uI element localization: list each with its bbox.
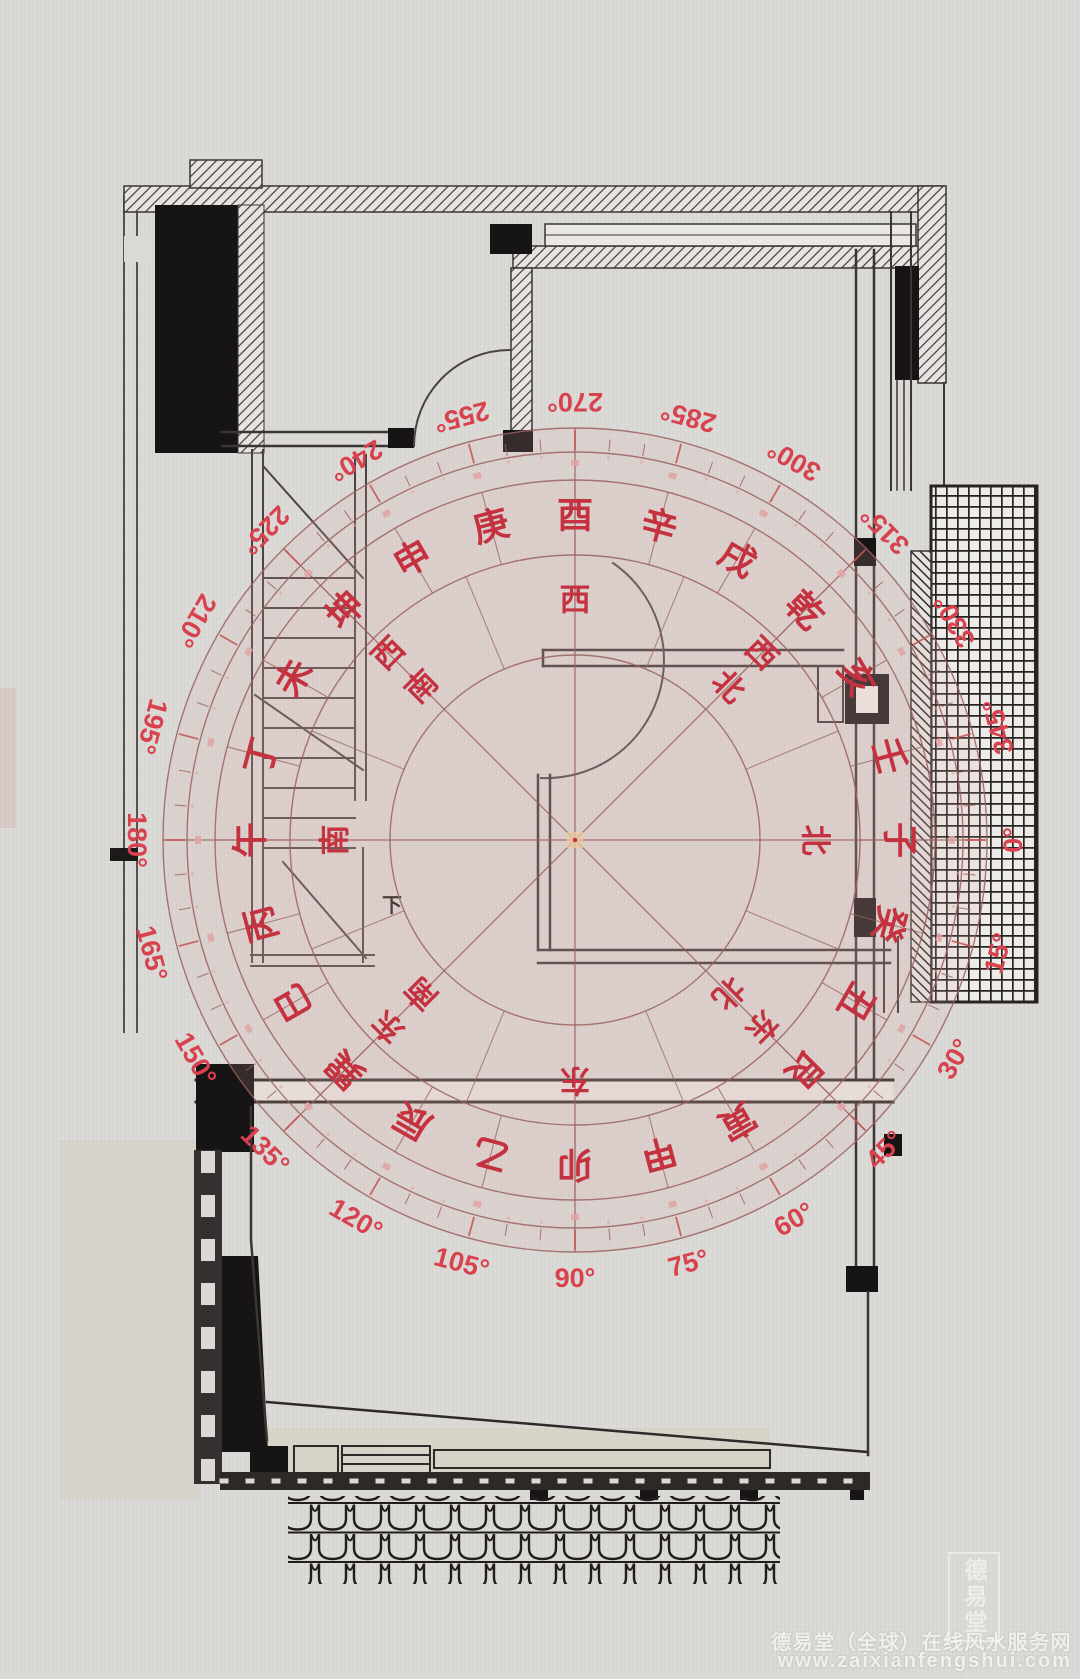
mountain-label: 午 <box>230 822 271 858</box>
topleft-wall-notch <box>124 236 152 262</box>
right-wall-black-3 <box>846 1266 878 1292</box>
tick-blob <box>571 460 579 466</box>
tick-blob-minor <box>213 707 216 710</box>
floorplan-canvas: 下 子癸丑艮寅甲卯乙辰巽巳丙午丁未坤申庚酉辛戌乾亥壬北东北东东南南西南西西北0°… <box>0 0 1080 1679</box>
degree-label: 30° <box>931 1034 977 1084</box>
tick-blob-minor <box>922 676 925 679</box>
tick-blob-minor <box>956 872 959 875</box>
watermark-url: www.zaixianfengshui.com <box>778 1650 1072 1673</box>
tick-blob-minor <box>820 1133 823 1136</box>
divider-top-black-cap <box>490 224 532 254</box>
tick-blob-minor <box>868 1085 871 1088</box>
tick-blob-minor <box>607 1221 610 1224</box>
tick-blob-minor <box>225 676 228 679</box>
direction-label: 北 <box>798 825 833 856</box>
tick-blob-minor <box>195 905 198 908</box>
tick-blob-minor <box>868 592 871 595</box>
tick-blob-minor <box>411 490 414 493</box>
tick-blob-minor <box>956 805 959 808</box>
tick-blob-minor <box>640 460 643 463</box>
tick-blob-minor <box>353 524 356 527</box>
top-raised-block <box>190 160 262 188</box>
upper-door-jamb <box>388 428 414 448</box>
degree-label: 270° <box>547 387 603 417</box>
tick-blob-minor <box>540 1221 543 1224</box>
tick-blob-minor <box>934 707 937 710</box>
tick-blob-minor <box>442 1199 445 1202</box>
direction-label: 南 <box>318 825 353 856</box>
direction-label: 西 <box>560 583 591 618</box>
topright-black-column <box>895 266 919 380</box>
tick-blob-minor <box>225 1001 228 1004</box>
mountain-label: 卯 <box>557 1145 593 1186</box>
tick-blob-minor <box>540 456 543 459</box>
luopan-compass-overlay: 子癸丑艮寅甲卯乙辰巽巳丙午丁未坤申庚酉辛戌乾亥壬北东北东东南南西南西西北0°15… <box>122 387 1028 1293</box>
tick-blob-minor <box>934 970 937 973</box>
tick-blob-minor <box>705 1199 708 1202</box>
tick-blob-minor <box>640 1217 643 1220</box>
degree-label: 285° <box>658 395 720 438</box>
tick-blob-minor <box>888 1059 891 1062</box>
tick-blob-minor <box>736 490 739 493</box>
degree-label: 75° <box>665 1243 712 1283</box>
direction-label: 东 <box>560 1063 591 1098</box>
tick-blob-minor <box>259 1059 262 1062</box>
tick-blob-minor <box>191 872 194 875</box>
tick-blob-minor <box>607 456 610 459</box>
tick-blob-minor <box>794 1153 797 1156</box>
tick-blob-minor <box>259 618 262 621</box>
tick-blob-minor <box>191 805 194 808</box>
topleft-hatch-strip <box>238 205 264 453</box>
tick-blob-minor <box>507 1217 510 1220</box>
tick-blob-minor <box>952 772 955 775</box>
mountain-label: 酉 <box>557 495 593 536</box>
tick-blob-minor <box>353 1153 356 1156</box>
degree-label: 255° <box>431 395 493 438</box>
tick-blob <box>949 836 955 844</box>
tick-blob-minor <box>888 618 891 621</box>
compass-center-point <box>573 838 577 842</box>
tick-blob-minor <box>736 1187 739 1190</box>
tick-blob-minor <box>411 1187 414 1190</box>
tick-blob-minor <box>507 460 510 463</box>
tick-blob-minor <box>327 544 330 547</box>
degree-label: 105° <box>431 1241 493 1284</box>
tick-blob-minor <box>327 1133 330 1136</box>
tick-blob-minor <box>279 592 282 595</box>
tick-blob-minor <box>922 1001 925 1004</box>
tick-blob-minor <box>442 478 445 481</box>
watermark-seal: 德易堂 <box>948 1552 1000 1642</box>
degree-label: 180° <box>122 812 152 868</box>
tick-blob-minor <box>195 772 198 775</box>
bottom-step-black <box>250 1446 288 1474</box>
roof-tiles <box>288 1496 780 1584</box>
degree-label: 45° <box>860 1125 910 1175</box>
tick-blob-minor <box>705 478 708 481</box>
degree-label: 0° <box>998 827 1028 853</box>
tick-blob-minor <box>820 544 823 547</box>
feng-shui-floorplan-page: 下 子癸丑艮寅甲卯乙辰巽巳丙午丁未坤申庚酉辛戌乾亥壬北东北东东南南西南西西北0°… <box>0 0 1080 1679</box>
degree-label: 90° <box>555 1263 596 1293</box>
topleft-black-wall <box>155 205 238 453</box>
left-outer-wall <box>124 196 137 1032</box>
tick-blob <box>195 836 201 844</box>
mountain-label: 子 <box>880 822 921 858</box>
tick-blob <box>571 1214 579 1220</box>
tick-blob-minor <box>213 970 216 973</box>
tick-blob-minor <box>952 905 955 908</box>
hall-room-divider-wall <box>511 268 532 432</box>
degree-label: 60° <box>769 1196 819 1242</box>
topright-corner-hatched <box>918 186 946 383</box>
top-inner-wall-hatched <box>513 246 920 268</box>
tick-blob-minor <box>279 1085 282 1088</box>
tick-blob-minor <box>794 524 797 527</box>
